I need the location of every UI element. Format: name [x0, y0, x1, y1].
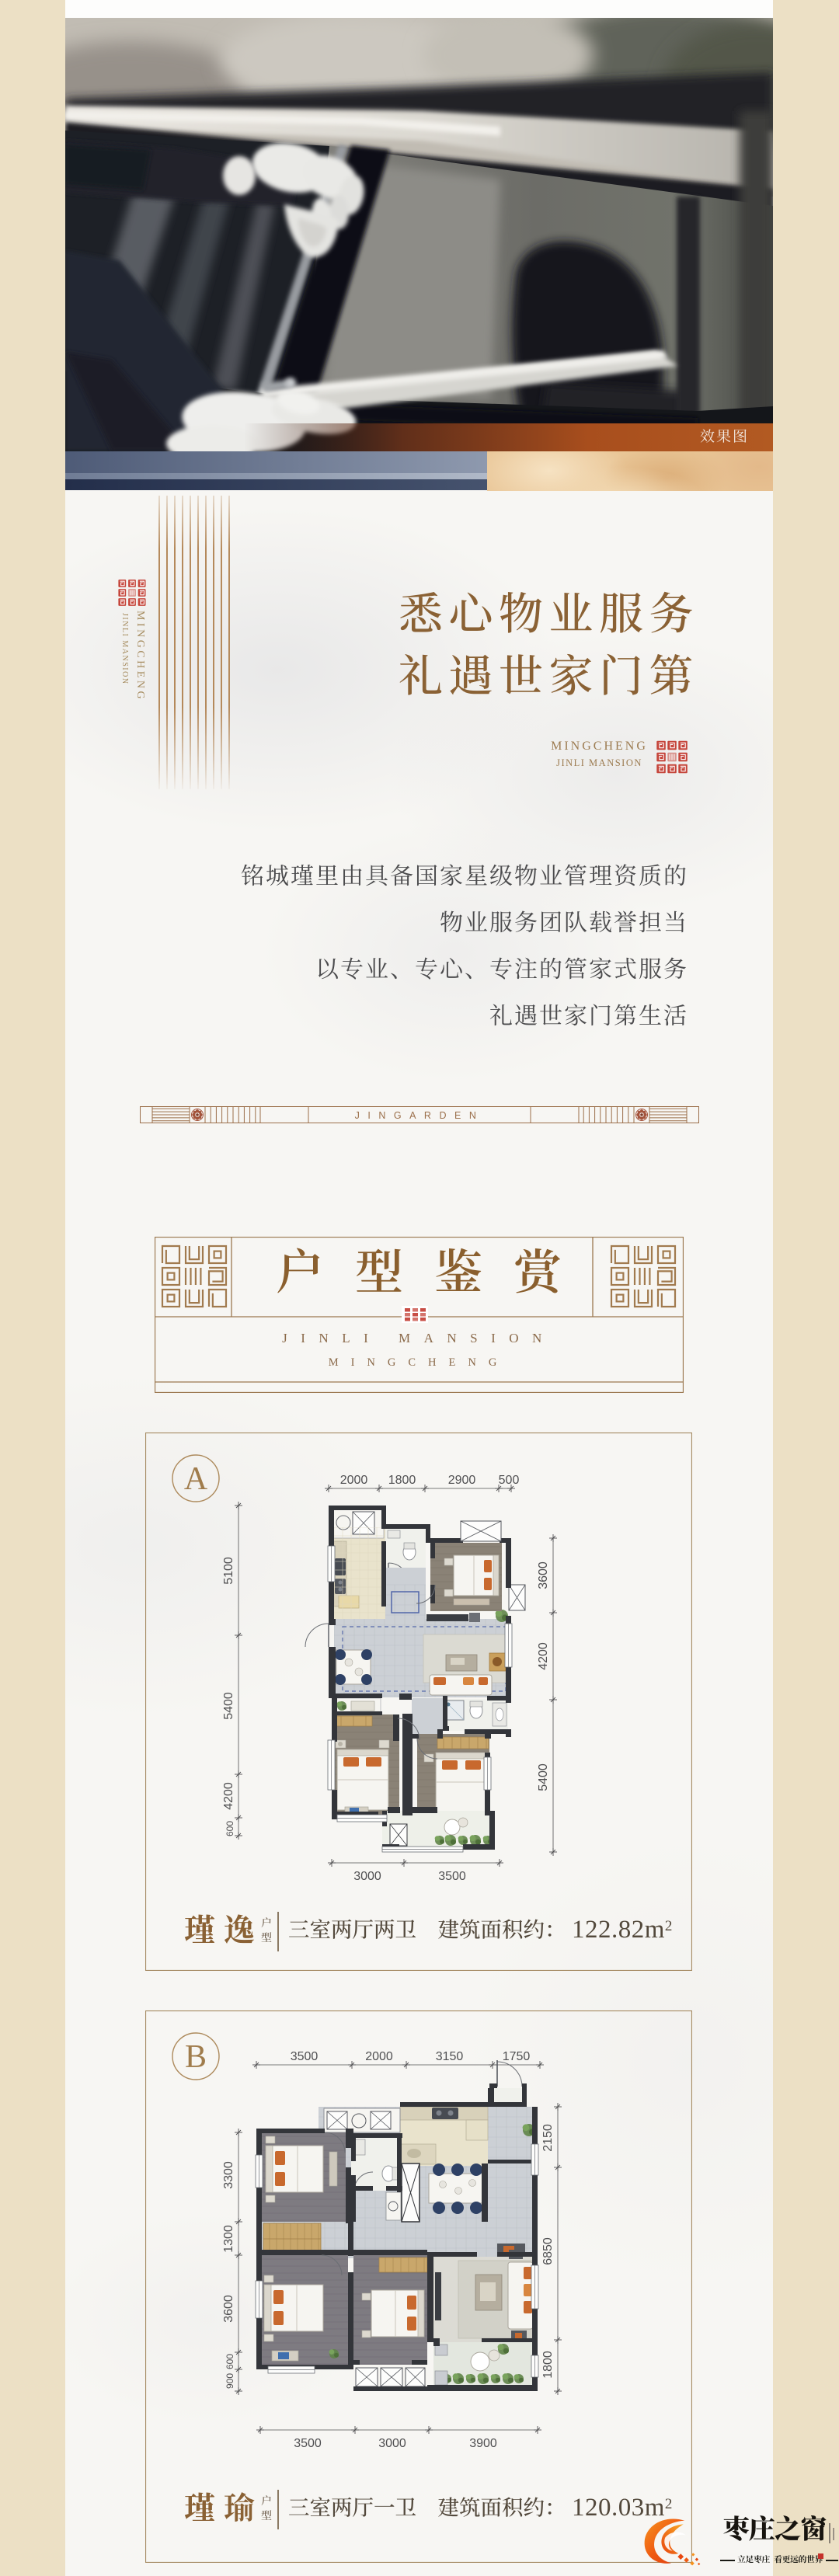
- svg-text:5400: 5400: [537, 1763, 550, 1791]
- svg-text:3600: 3600: [222, 2295, 235, 2323]
- svg-text:B: B: [185, 2039, 207, 2075]
- svg-text:1750: 1750: [503, 2050, 531, 2063]
- svg-text:6850: 6850: [541, 2237, 555, 2265]
- svg-text:3600: 3600: [537, 1561, 550, 1589]
- svg-text:3500: 3500: [438, 1870, 466, 1883]
- svg-text:600: 600: [225, 1821, 235, 1836]
- svg-text:3500: 3500: [291, 2050, 319, 2063]
- svg-text:3900: 3900: [469, 2437, 497, 2450]
- svg-text:3150: 3150: [436, 2050, 464, 2063]
- svg-text:3000: 3000: [378, 2437, 406, 2450]
- svg-text:JINLI MANSION: JINLI MANSION: [282, 1331, 555, 1345]
- svg-text:3300: 3300: [222, 2161, 235, 2189]
- svg-text:2150: 2150: [541, 2124, 555, 2152]
- svg-text:2000: 2000: [365, 2050, 393, 2063]
- svg-text:2900: 2900: [448, 1474, 476, 1487]
- svg-text:5100: 5100: [222, 1557, 235, 1585]
- svg-text:A: A: [184, 1461, 208, 1497]
- svg-text:3000: 3000: [353, 1870, 381, 1883]
- svg-text:1800: 1800: [541, 2351, 555, 2379]
- svg-text:5400: 5400: [222, 1692, 235, 1720]
- svg-text:2000: 2000: [340, 1474, 368, 1487]
- svg-text:900: 900: [225, 2373, 235, 2389]
- svg-text:1800: 1800: [388, 1474, 416, 1487]
- svg-text:3500: 3500: [294, 2437, 322, 2450]
- svg-text:600: 600: [225, 2354, 235, 2369]
- svg-text:4200: 4200: [222, 1782, 235, 1810]
- svg-text:1300: 1300: [222, 2225, 235, 2253]
- svg-text:500: 500: [499, 1474, 520, 1487]
- svg-text:MINGCHENG: MINGCHENG: [329, 1356, 510, 1369]
- svg-text:JINGARDEN: JINGARDEN: [355, 1110, 485, 1121]
- svg-text:4200: 4200: [537, 1642, 550, 1670]
